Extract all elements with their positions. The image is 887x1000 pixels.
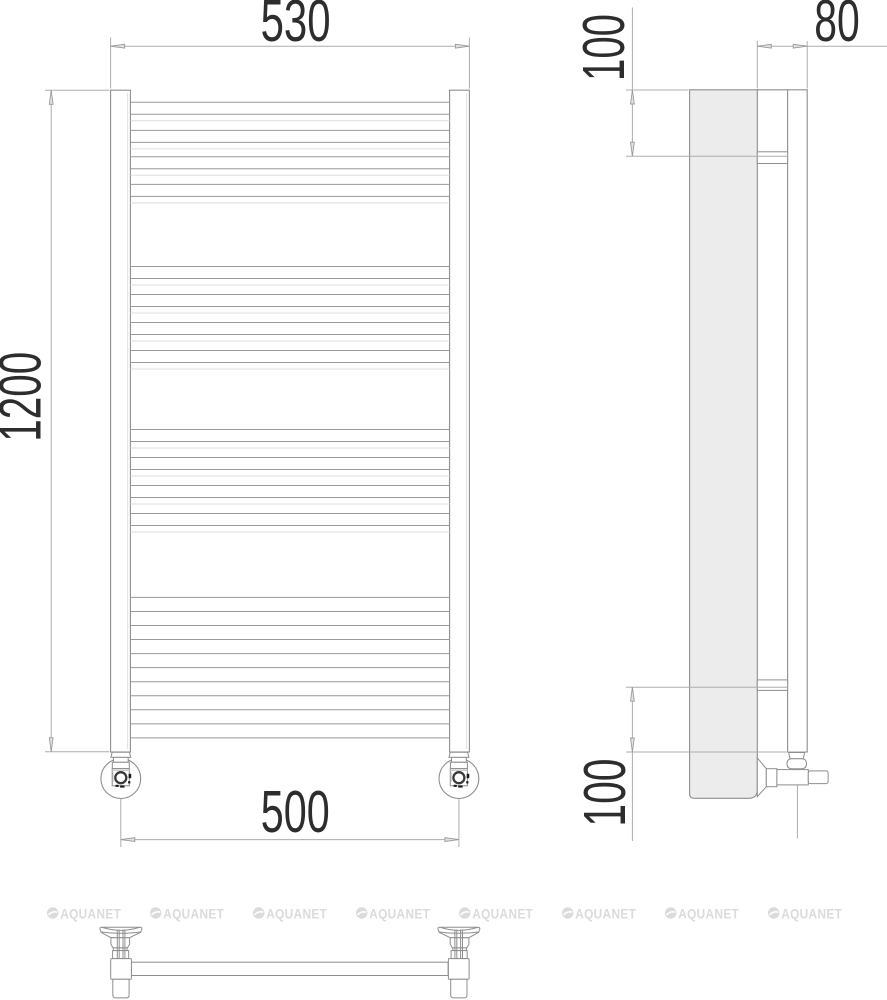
svg-text:AQUANET: AQUANET — [163, 906, 224, 921]
svg-text:AQUANET: AQUANET — [575, 906, 636, 921]
svg-text:AQUANET: AQUANET — [60, 906, 121, 921]
svg-text:100: 100 — [572, 759, 638, 827]
svg-text:AQUANET: AQUANET — [266, 906, 327, 921]
svg-text:AQUANET: AQUANET — [472, 906, 533, 921]
svg-text:80: 80 — [814, 0, 860, 54]
svg-text:AQUANET: AQUANET — [678, 906, 739, 921]
svg-text:500: 500 — [261, 779, 330, 845]
svg-text:530: 530 — [261, 0, 331, 54]
svg-text:AQUANET: AQUANET — [369, 906, 430, 921]
svg-text:AQUANET: AQUANET — [781, 906, 842, 921]
svg-text:100: 100 — [571, 14, 637, 81]
svg-text:1200: 1200 — [0, 352, 53, 442]
